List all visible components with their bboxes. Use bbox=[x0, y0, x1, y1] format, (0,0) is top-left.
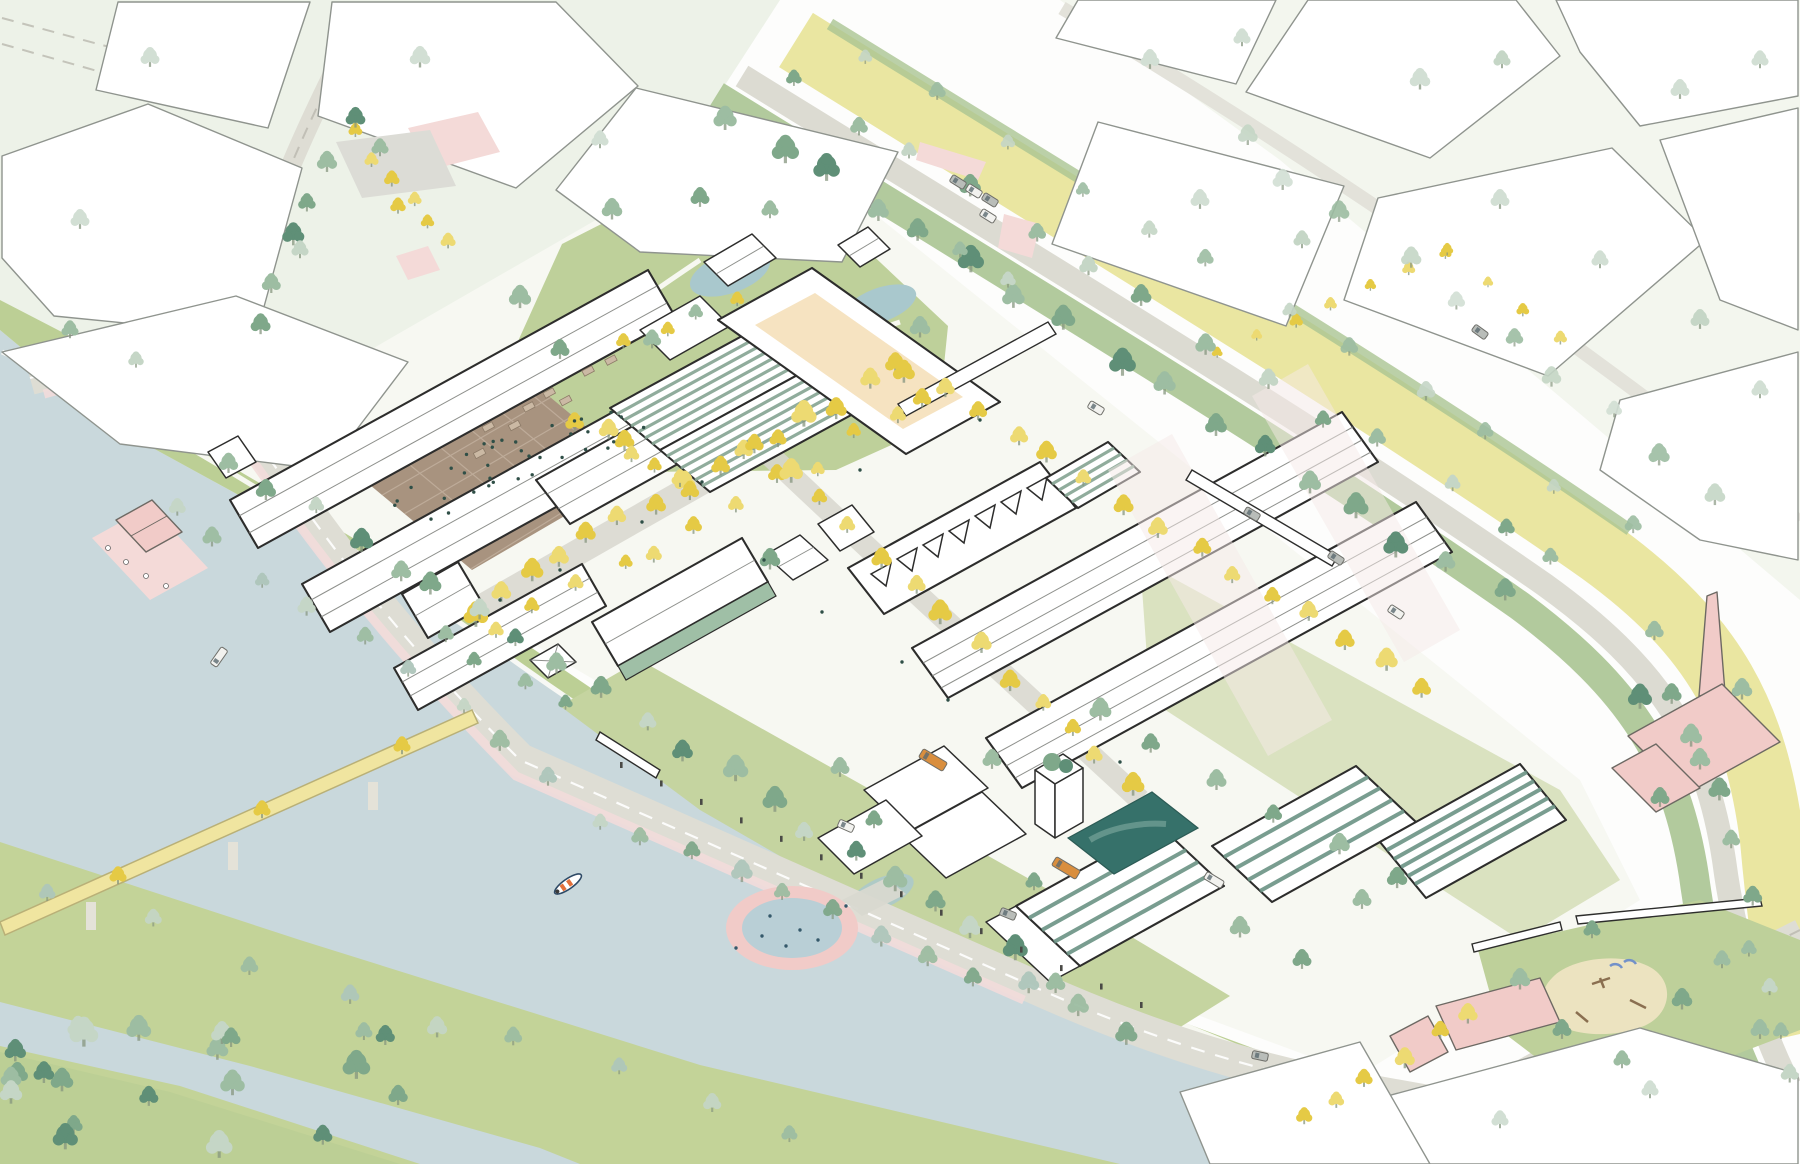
person-dot bbox=[820, 610, 823, 613]
fence-post bbox=[860, 873, 863, 879]
person-dot bbox=[450, 467, 453, 470]
bridge-pier bbox=[368, 782, 378, 810]
person-dot bbox=[612, 440, 615, 443]
person-dot bbox=[573, 419, 576, 422]
person-dot bbox=[606, 446, 609, 449]
person-dot bbox=[762, 558, 765, 561]
fence-post bbox=[700, 799, 703, 805]
person-dot bbox=[482, 442, 485, 445]
bridge-pier bbox=[228, 842, 238, 870]
person-dot bbox=[550, 424, 553, 427]
person-dot bbox=[472, 490, 475, 493]
person-dot bbox=[580, 417, 583, 420]
fence-post bbox=[740, 817, 743, 823]
person-dot bbox=[500, 439, 503, 442]
fence-post bbox=[1140, 1002, 1143, 1008]
fence-post bbox=[820, 854, 823, 860]
person-dot bbox=[620, 415, 623, 418]
person-dot bbox=[844, 904, 847, 907]
person-dot bbox=[858, 468, 861, 471]
person-dot bbox=[768, 914, 771, 917]
masterplan-illustration bbox=[0, 0, 1800, 1164]
bridge-pier bbox=[86, 902, 96, 930]
person-dot bbox=[900, 660, 903, 663]
person-dot bbox=[816, 938, 819, 941]
person-dot bbox=[558, 568, 561, 571]
person-dot bbox=[760, 934, 763, 937]
fence-post bbox=[1060, 965, 1063, 971]
person-dot bbox=[946, 698, 949, 701]
person-dot bbox=[396, 499, 399, 502]
person-dot bbox=[784, 944, 787, 947]
person-dot bbox=[520, 449, 523, 452]
person-dot bbox=[538, 456, 541, 459]
person-dot bbox=[491, 446, 494, 449]
person-dot bbox=[429, 517, 432, 520]
person-dot bbox=[517, 477, 520, 480]
person-dot bbox=[527, 454, 530, 457]
person-dot bbox=[487, 484, 490, 487]
fence-post bbox=[620, 762, 623, 768]
masterplan-canvas bbox=[0, 0, 1800, 1164]
person-dot bbox=[447, 511, 450, 514]
fence-post bbox=[900, 891, 903, 897]
person-dot bbox=[409, 486, 412, 489]
fence-post bbox=[660, 780, 663, 786]
person-dot bbox=[492, 440, 495, 443]
person-dot bbox=[465, 453, 468, 456]
person-dot bbox=[642, 426, 645, 429]
person-dot bbox=[798, 928, 801, 931]
person-dot bbox=[1118, 760, 1121, 763]
person-dot bbox=[700, 480, 703, 483]
person-dot bbox=[514, 440, 517, 443]
person-dot bbox=[393, 504, 396, 507]
fence-post bbox=[980, 928, 983, 934]
person-dot bbox=[488, 477, 491, 480]
person-dot bbox=[586, 430, 589, 433]
person-dot bbox=[560, 456, 563, 459]
fence-post bbox=[1020, 947, 1023, 953]
roof-garden-tower bbox=[1035, 753, 1083, 838]
person-dot bbox=[978, 418, 981, 421]
person-dot bbox=[443, 497, 446, 500]
person-dot bbox=[734, 946, 737, 949]
person-dot bbox=[492, 481, 495, 484]
person-dot bbox=[569, 432, 572, 435]
person-dot bbox=[531, 473, 534, 476]
person-dot bbox=[640, 520, 643, 523]
person-dot bbox=[463, 471, 466, 474]
person-dot bbox=[609, 411, 612, 414]
person-dot bbox=[486, 464, 489, 467]
person-dot bbox=[584, 448, 587, 451]
fence-post bbox=[780, 836, 783, 842]
fence-post bbox=[940, 910, 943, 916]
fence-post bbox=[1100, 984, 1103, 990]
person-dot bbox=[498, 598, 501, 601]
